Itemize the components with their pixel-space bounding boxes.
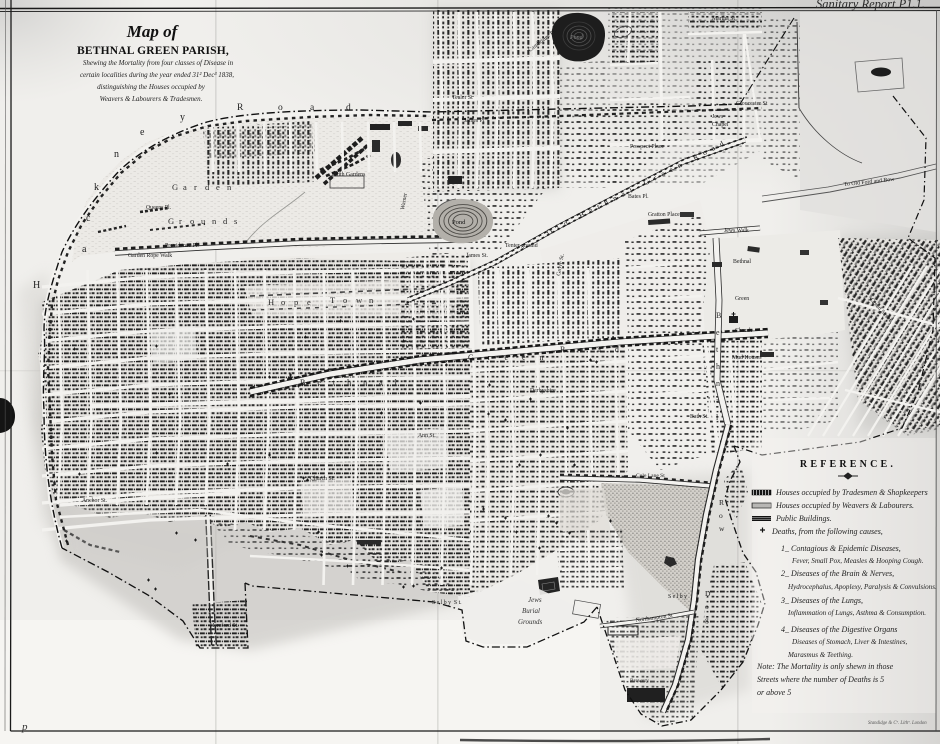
- svg-text:D: D: [705, 589, 711, 598]
- svg-text:g: g: [705, 615, 709, 624]
- svg-text:Brewery: Brewery: [630, 678, 649, 684]
- svg-text:n: n: [114, 149, 119, 160]
- svg-text:2_ Diseases of the Brain & Ner: 2_ Diseases of the Brain & Nerves,: [781, 569, 894, 578]
- svg-text:Mud Houses: Mud Houses: [732, 355, 762, 361]
- svg-text:Houses occupied by Tradesmen &: Houses occupied by Tradesmen & Shopkeepe…: [775, 488, 928, 497]
- svg-text:Inflammation of Lungs, Asthma: Inflammation of Lungs, Asthma & Consumpt…: [787, 609, 926, 617]
- svg-text:Pond: Pond: [452, 219, 466, 226]
- svg-text:Diseases of Stomach, Liver & I: Diseases of Stomach, Liver & Intestines,: [791, 638, 907, 646]
- svg-text:o: o: [190, 216, 194, 226]
- svg-text:Jews Walk: Jews Walk: [724, 228, 749, 234]
- svg-text:Gloucester St: Gloucester St: [736, 101, 768, 107]
- svg-text:w: w: [719, 524, 725, 533]
- svg-text:Jews: Jews: [528, 596, 542, 604]
- svg-text:d: d: [346, 103, 351, 113]
- svg-text:a: a: [716, 396, 720, 405]
- svg-text:Gratton Place: Gratton Place: [648, 212, 680, 218]
- svg-text:REFERENCE.: REFERENCE.: [800, 459, 896, 470]
- svg-text:G r e e n: G r e e n: [468, 353, 550, 362]
- svg-text:Prospect Place: Prospect Place: [630, 144, 664, 150]
- svg-text:Hereford St.: Hereford St.: [210, 622, 239, 629]
- svg-text:Garden Rope Walk: Garden Rope Walk: [128, 253, 172, 259]
- svg-text:R: R: [719, 498, 724, 507]
- svg-text:Standidge & Cº. Lithº. London: Standidge & Cº. Lithº. London: [868, 720, 927, 726]
- svg-text:h: h: [716, 362, 720, 371]
- svg-text:Fever, Small Pox, Measles & Ho: Fever, Small Pox, Measles & Hooping Coug…: [791, 557, 924, 565]
- svg-text:Burial: Burial: [522, 607, 540, 615]
- svg-text:o: o: [719, 511, 723, 520]
- svg-text:o: o: [281, 297, 285, 307]
- svg-text:a: a: [183, 182, 187, 192]
- svg-text:G: G: [168, 216, 174, 226]
- svg-text:c: c: [86, 213, 91, 224]
- svg-text:Bath St.: Bath St.: [690, 414, 709, 420]
- svg-text:Marasmus & Teething.: Marasmus & Teething.: [787, 651, 853, 659]
- svg-text:Queens Pl.: Queens Pl.: [146, 205, 172, 211]
- svg-text:B: B: [716, 311, 721, 320]
- svg-text:Map of: Map of: [126, 22, 180, 41]
- svg-text:Hydrocephalus, Apoplexy, Paral: Hydrocephalus, Apoplexy, Paralysis & Con…: [787, 583, 937, 591]
- svg-text:o: o: [705, 602, 709, 611]
- svg-text:Deaths, from the following cau: Deaths, from the following causes,: [771, 527, 883, 536]
- svg-text:Church St.: Church St.: [310, 476, 335, 482]
- svg-text:Derbyshire: Derbyshire: [530, 388, 556, 394]
- svg-text:Grounds: Grounds: [518, 618, 543, 626]
- svg-text:p: p: [294, 297, 298, 307]
- svg-text:Houses occupied by Weavers & L: Houses occupied by Weavers & Labourers.: [775, 501, 914, 510]
- svg-text:a: a: [82, 244, 87, 255]
- svg-text:or above 5: or above 5: [757, 688, 791, 697]
- svg-text:H: H: [268, 297, 274, 307]
- svg-text:James Pl: James Pl: [464, 118, 485, 124]
- svg-text:S e l b y S t.: S e l b y S t.: [432, 600, 462, 606]
- svg-text:Bates Pl.: Bates Pl.: [628, 194, 649, 200]
- svg-text:Cole Lane St: Cole Lane St: [636, 473, 665, 479]
- svg-text:Sanitary Report P1.1.: Sanitary Report P1.1.: [816, 0, 925, 11]
- svg-text:n: n: [716, 379, 720, 388]
- svg-text:B e t h n a l: B e t h n a l: [300, 378, 402, 387]
- svg-text:k: k: [94, 182, 99, 193]
- svg-text:e: e: [307, 297, 311, 307]
- svg-text:BETHNAL GREEN PARISH,: BETHNAL GREEN PARISH,: [77, 45, 229, 57]
- svg-text:R: R: [237, 103, 244, 113]
- svg-text:Jews: Jews: [712, 114, 724, 120]
- svg-text:Edith Gardens: Edith Gardens: [332, 172, 366, 178]
- svg-text:Pond: Pond: [569, 35, 584, 41]
- svg-text:Providence Pl.: Providence Pl.: [165, 243, 199, 249]
- svg-text:Ann St.: Ann St.: [418, 433, 436, 439]
- svg-text:Bethnal: Bethnal: [733, 259, 751, 265]
- svg-text:Public Buildings.: Public Buildings.: [775, 514, 832, 523]
- svg-text:w: w: [356, 295, 363, 305]
- svg-text:s: s: [234, 216, 237, 226]
- svg-text:e: e: [216, 182, 220, 192]
- svg-text:T: T: [330, 295, 336, 305]
- svg-text:1_ Contagious & Epidemic Disea: 1_ Contagious & Epidemic Diseases,: [781, 544, 901, 553]
- svg-text:certain localities during the: certain localities during the year ended…: [80, 71, 234, 79]
- svg-text:Shewing the Mortality from fou: Shewing the Mortality from four classes …: [83, 59, 234, 67]
- svg-text:H: H: [33, 280, 40, 291]
- svg-text:Weavers & Labourers & Tradesme: Weavers & Labourers & Tradesmen.: [100, 95, 203, 103]
- svg-text:o: o: [278, 103, 283, 113]
- svg-text:e: e: [716, 328, 720, 337]
- svg-text:Tenter ground: Tenter ground: [505, 243, 538, 249]
- svg-text:3_ Diseases of the Lungs,: 3_ Diseases of the Lungs,: [780, 596, 863, 605]
- svg-text:Chapel: Chapel: [712, 122, 729, 128]
- svg-text:4_ Diseases of the Digestive O: 4_ Diseases of the Digestive Organs: [781, 625, 897, 634]
- svg-text:distinguishing the Houses occu: distinguishing the Houses occupied by: [97, 83, 206, 91]
- svg-text:S e l b y: S e l b y: [668, 594, 687, 600]
- svg-text:G: G: [172, 182, 178, 192]
- svg-text:Tealer St: Tealer St: [452, 95, 473, 101]
- svg-text:e: e: [140, 127, 145, 138]
- svg-text:r: r: [194, 182, 197, 192]
- svg-text:R o a d: R o a d: [560, 345, 625, 354]
- svg-text:Streets where the number of De: Streets where the number of Deaths is 5: [757, 675, 884, 684]
- svg-text:o: o: [343, 295, 347, 305]
- svg-text:p: p: [21, 721, 28, 733]
- svg-text:James St.: James St.: [466, 253, 488, 259]
- svg-text:Anchor St.: Anchor St.: [82, 498, 108, 504]
- svg-text:Green: Green: [735, 296, 749, 302]
- svg-text:r: r: [179, 216, 182, 226]
- svg-text:Note: The Mortality is only sh: Note: The Mortality is only shewn in tho…: [756, 662, 894, 671]
- svg-text:y: y: [180, 112, 185, 123]
- svg-text:Martha St: Martha St: [712, 16, 735, 22]
- svg-text:Church: Church: [735, 328, 752, 334]
